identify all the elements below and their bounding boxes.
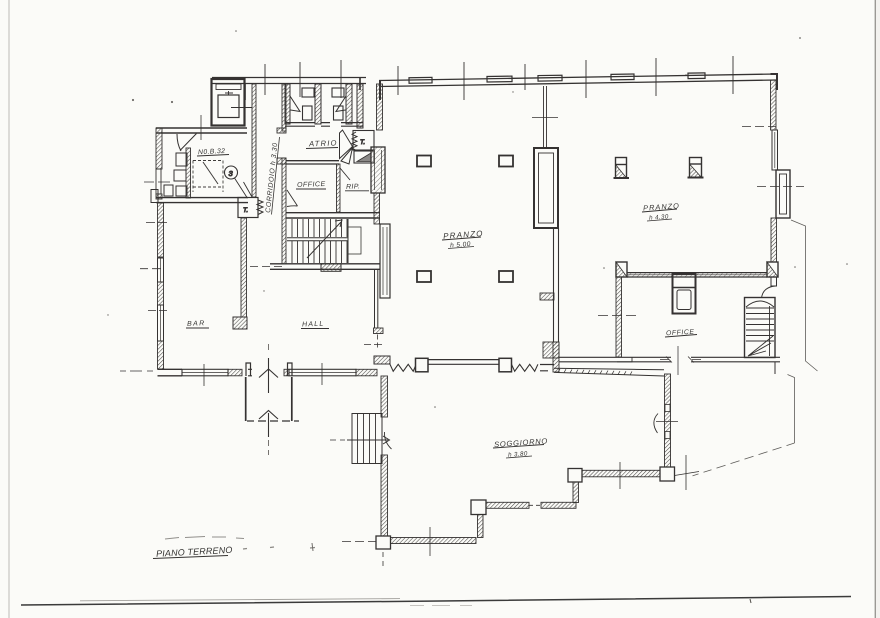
svg-text:HALL: HALL (302, 321, 325, 329)
svg-text:RIP.: RIP. (346, 183, 361, 190)
svg-text:T.: T. (243, 207, 248, 214)
svg-text:OFFICE: OFFICE (297, 181, 326, 189)
svg-text:BAR: BAR (187, 320, 206, 328)
svg-text:ATRIO: ATRIO (308, 138, 338, 148)
svg-text:T.: T. (360, 139, 365, 146)
